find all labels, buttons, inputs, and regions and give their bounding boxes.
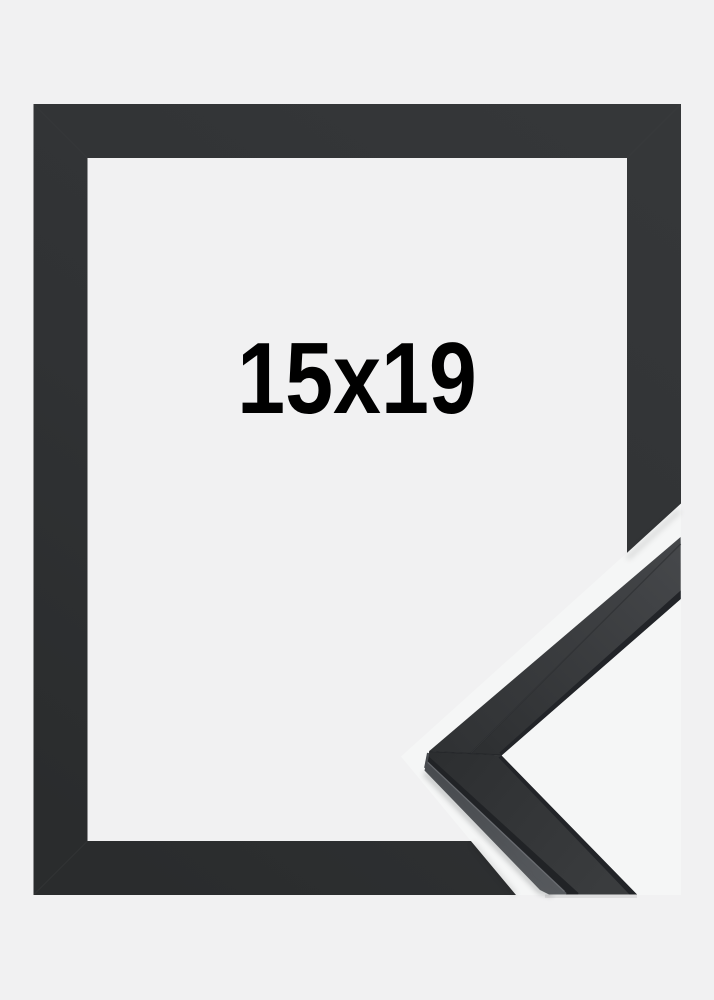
- svg-text:15x19: 15x19: [237, 321, 477, 434]
